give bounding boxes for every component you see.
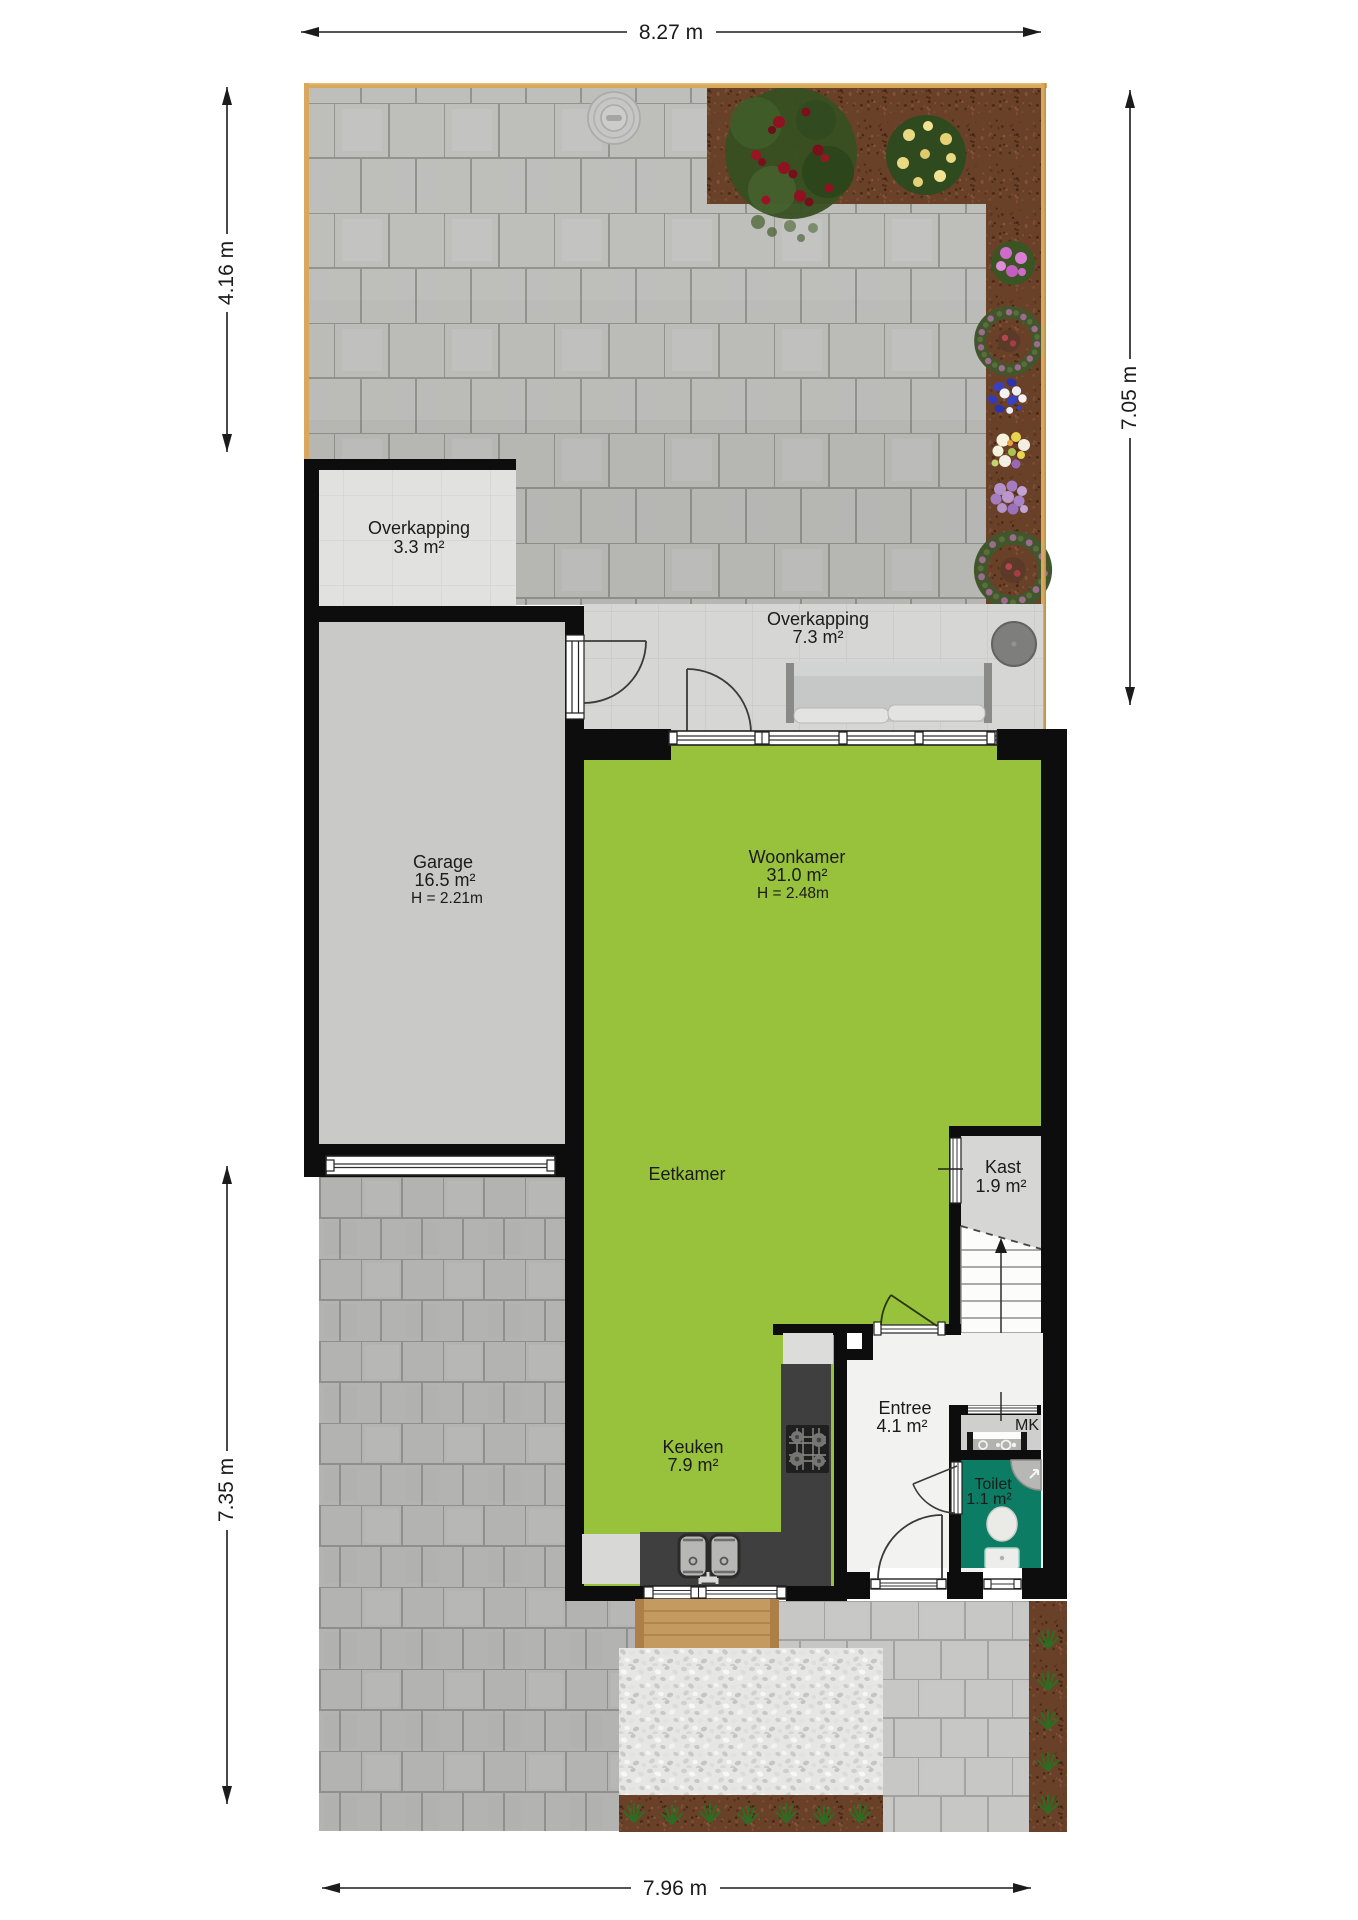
svg-text:7.3 m²: 7.3 m² [792, 627, 843, 647]
svg-text:MK: MK [1015, 1417, 1039, 1434]
svg-text:Garage: Garage [413, 852, 473, 872]
svg-text:H = 2.48m: H = 2.48m [757, 885, 829, 902]
svg-text:1.9 m²: 1.9 m² [975, 1176, 1026, 1196]
svg-text:4.16 m: 4.16 m [215, 241, 238, 305]
svg-text:3.3 m²: 3.3 m² [393, 537, 444, 557]
svg-text:7.9 m²: 7.9 m² [667, 1455, 718, 1475]
svg-text:Kast: Kast [985, 1157, 1021, 1177]
svg-text:16.5 m²: 16.5 m² [414, 870, 475, 890]
svg-text:Overkapping: Overkapping [368, 518, 470, 538]
svg-text:Eetkamer: Eetkamer [648, 1164, 725, 1184]
svg-text:7.96 m: 7.96 m [643, 1877, 707, 1900]
svg-text:4.1 m²: 4.1 m² [876, 1416, 927, 1436]
svg-text:8.27 m: 8.27 m [639, 21, 703, 44]
svg-text:H = 2.21m: H = 2.21m [411, 890, 483, 907]
svg-text:1.1 m²: 1.1 m² [966, 1491, 1012, 1508]
svg-text:Overkapping: Overkapping [767, 609, 869, 629]
svg-text:Keuken: Keuken [662, 1437, 723, 1457]
svg-text:Entree: Entree [878, 1398, 931, 1418]
svg-text:Woonkamer: Woonkamer [749, 847, 846, 867]
svg-text:31.0 m²: 31.0 m² [766, 865, 827, 885]
svg-text:7.35 m: 7.35 m [215, 1458, 238, 1522]
svg-text:7.05 m: 7.05 m [1118, 366, 1141, 430]
